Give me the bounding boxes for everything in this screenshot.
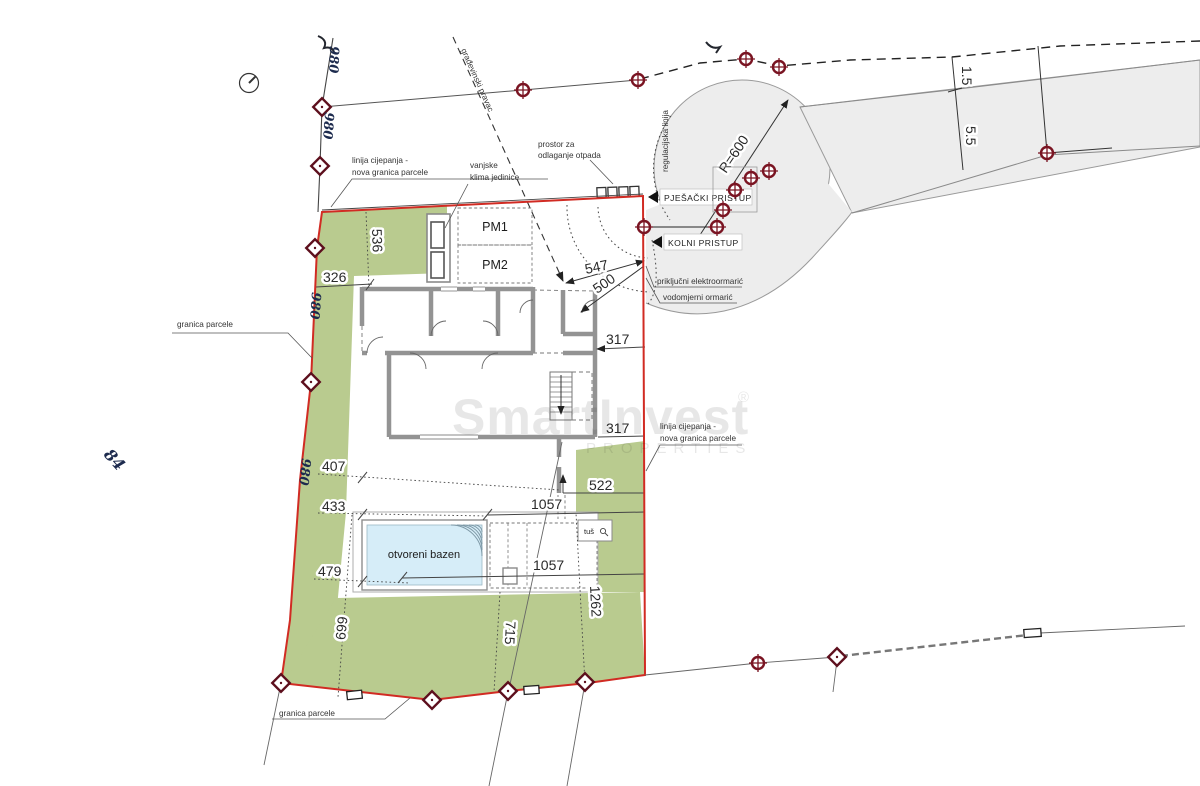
vehicle-access-label: KOLNI PRISTUP	[668, 238, 739, 248]
dim-715: 715	[502, 621, 519, 645]
electrical-cabinet-label: priključni elektroormarić	[657, 277, 743, 286]
survey-circle-marker	[514, 81, 532, 99]
parking-pm2-label: PM2	[482, 258, 508, 272]
dim-317a: 317	[606, 331, 630, 347]
survey-circle-marker	[737, 50, 755, 68]
survey-mark-text: 980	[325, 46, 341, 74]
survey-mark-text: 980	[295, 458, 313, 487]
split-line-label-2: nova granica parcele	[352, 168, 428, 177]
dim-1262: 1262	[587, 585, 605, 617]
dim-536: 536	[369, 229, 386, 253]
dim-522: 522	[589, 477, 613, 493]
survey-mark-text: 980	[306, 292, 323, 320]
dim-433: 433	[322, 498, 346, 514]
survey-diamond-marker	[828, 648, 846, 666]
annotation-granica-top: granica parcele	[172, 320, 312, 358]
dim-sidewalk-width: 1.5	[959, 66, 975, 86]
waste-label-2: odlaganje otpada	[538, 151, 601, 160]
survey-circle-marker	[629, 71, 647, 89]
shower: tuš	[578, 520, 612, 541]
annotation-granica-bottom: granica parcele	[272, 698, 410, 719]
survey-circle-marker	[770, 58, 788, 76]
handwritten-survey-marks: 980 980 980 980 84	[99, 46, 341, 486]
regulation-line-label: regulacijska linija	[661, 110, 670, 172]
dim-669: 669	[333, 616, 351, 641]
shower-label: tuš	[584, 527, 594, 536]
pool: otvoreni bazen	[362, 520, 487, 590]
parking-pm1-label: PM1	[482, 220, 508, 234]
terrace: otvoreni bazen	[353, 512, 598, 592]
dim-road-width: 5.5	[963, 126, 979, 146]
north-symbol	[240, 74, 259, 93]
water-meter-label: vodomjerni ormarić	[663, 293, 733, 302]
parcel-border-label: granica parcele	[177, 320, 233, 329]
waste-label-1: prostor za	[538, 140, 575, 149]
dim-1057a: 1057	[531, 496, 562, 512]
parcel-border-bottom-label: granica parcele	[279, 709, 335, 718]
survey-circle-marker	[749, 654, 767, 672]
pool-label: otvoreni bazen	[388, 549, 460, 561]
ac-units-label-2: klima jedinice	[470, 173, 520, 182]
annotation-waste: prostor za odlaganje otpada	[538, 140, 613, 184]
survey-diamond-marker	[311, 157, 329, 175]
site-plan-drawing: 1.5 5.5 R=600	[0, 0, 1200, 786]
plot-number-84: 84	[99, 444, 129, 474]
building-line-label: građevinski pravac	[459, 47, 495, 113]
watermark-sub: PROPERTIES	[586, 440, 752, 457]
watermark-reg: ®	[738, 389, 749, 406]
dim-1057b: 1057	[533, 557, 564, 573]
dim-479: 479	[318, 563, 342, 579]
survey-mark-text: 980	[319, 112, 336, 140]
ac-units-label-1: vanjske	[470, 161, 498, 170]
split-line-label-1: linija cijepanja -	[352, 156, 408, 165]
dim-326: 326	[323, 269, 347, 285]
watermark-brand: SmartInvest	[452, 389, 749, 445]
dim-407: 407	[322, 458, 346, 474]
site-plan-svg: 1.5 5.5 R=600	[0, 0, 1200, 786]
